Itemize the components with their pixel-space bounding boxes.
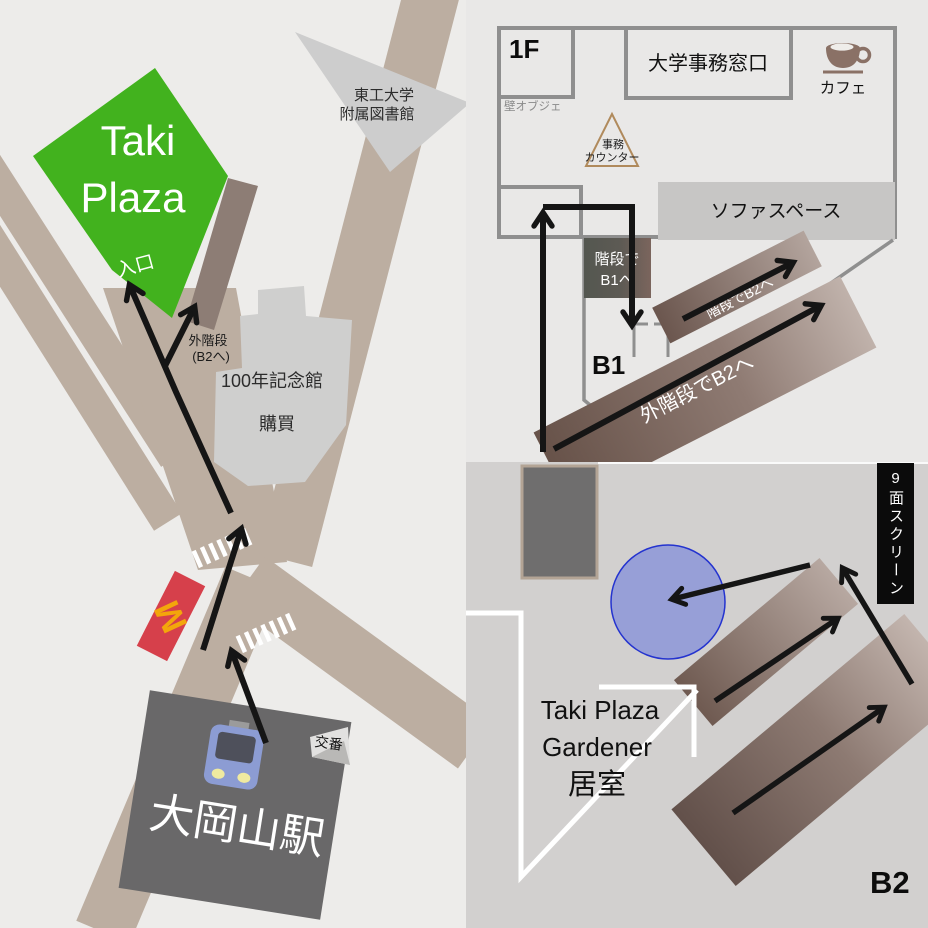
- taki-plaza-label-line1: Taki: [101, 117, 176, 164]
- stairs-to-b1-label-line2: B1へ: [600, 272, 633, 289]
- taki-plaza-label-line2: Plaza: [80, 174, 186, 221]
- storage-block: [522, 466, 597, 578]
- outdoor-stairs-label-line2: (B2へ): [192, 349, 230, 364]
- taki-plaza-access-map: 100年記念館 購買 東工大学 附属図書館 Taki Plaza 入口 外階段 …: [0, 0, 928, 928]
- wall-object-label: 壁オブジェ: [504, 99, 562, 113]
- coop-label: 購買: [259, 414, 295, 434]
- sofa-space-label: ソファスペース: [711, 201, 842, 222]
- gardener-room-label-line2: Gardener: [542, 732, 652, 762]
- gathering-circle: [611, 545, 725, 659]
- gardener-room-label-line1: Taki Plaza: [541, 695, 660, 725]
- nine-screen-label: 9面スクリーン: [885, 470, 906, 598]
- floor-b2-panel: Taki Plaza Gardener 居室 B2: [466, 462, 928, 928]
- cafe-label: カフェ: [820, 80, 867, 97]
- floor-1f-panel: 1F 壁オブジェ 大学事務窓口 カフェ 事務 カウンター ソファスペース 階段: [466, 0, 928, 462]
- gardener-room-label-line3: 居室: [568, 768, 626, 801]
- counter-label-line2: カウンター: [585, 151, 640, 164]
- outdoor-stairs-label-line1: 外階段: [188, 333, 227, 348]
- b1-label: B1: [592, 350, 625, 380]
- library-label-line1: 東工大学: [354, 87, 414, 104]
- office-window-label: 大学事務窓口: [648, 52, 768, 75]
- street-map-panel: 100年記念館 購買 東工大学 附属図書館 Taki Plaza 入口 外階段 …: [0, 0, 466, 928]
- b2-label: B2: [870, 865, 910, 900]
- library-label-line2: 附属図書館: [339, 106, 414, 123]
- counter-label-line1: 事務: [602, 137, 624, 151]
- memorial-hall-label: 100年記念館: [221, 370, 323, 391]
- stairs-to-b1-box: [584, 238, 651, 298]
- floor-1f-label: 1F: [509, 34, 539, 64]
- nine-screen-banner: 9面スクリーン: [877, 463, 914, 604]
